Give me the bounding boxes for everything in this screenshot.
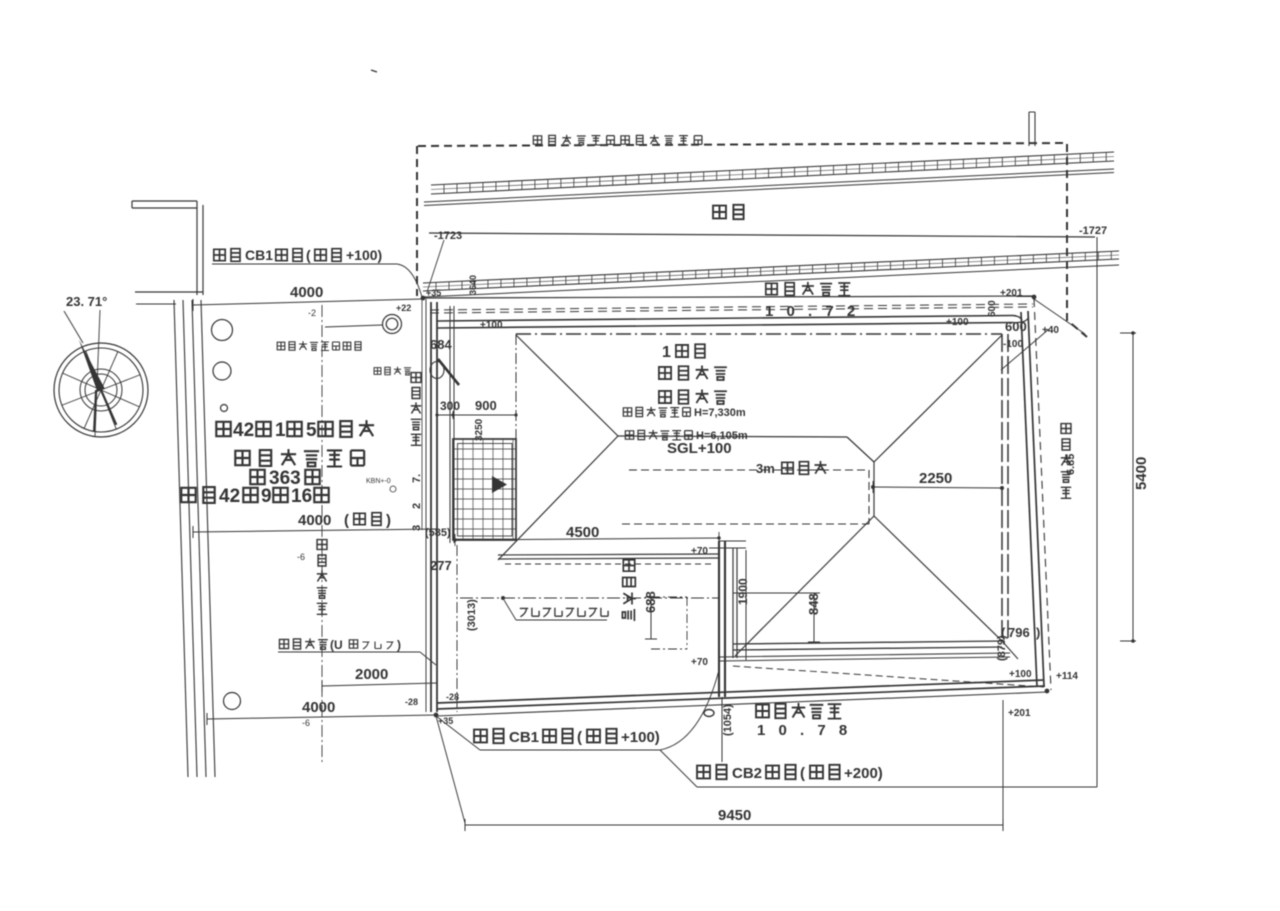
svg-text:+200): +200) xyxy=(844,765,883,782)
svg-text:3: 3 xyxy=(411,525,423,531)
svg-text:+22: +22 xyxy=(396,303,411,313)
svg-text:(: ( xyxy=(577,729,582,746)
svg-text:+201: +201 xyxy=(1008,708,1031,719)
svg-text:): ) xyxy=(1036,625,1040,640)
svg-text:4000: 4000 xyxy=(302,699,335,716)
svg-text:1: 1 xyxy=(275,420,286,441)
svg-text:(U: (U xyxy=(330,638,343,652)
svg-text:684: 684 xyxy=(430,337,452,352)
svg-text:+100: +100 xyxy=(1009,669,1032,680)
svg-text:+70: +70 xyxy=(691,657,708,668)
svg-text:1 0 . 7 2: 1 0 . 7 2 xyxy=(765,303,860,320)
svg-text:4000: 4000 xyxy=(290,284,323,301)
svg-text:-2: -2 xyxy=(308,308,316,318)
svg-text:3640: 3640 xyxy=(468,275,478,295)
svg-text:CB1: CB1 xyxy=(245,247,273,263)
svg-text:(585): (585) xyxy=(425,527,451,539)
svg-text:-1723: -1723 xyxy=(434,230,462,242)
svg-text:600: 600 xyxy=(1005,319,1027,334)
svg-text:2000: 2000 xyxy=(355,666,388,683)
svg-text:4500: 4500 xyxy=(566,524,599,541)
svg-text:796: 796 xyxy=(1008,625,1030,640)
svg-text:9450: 9450 xyxy=(718,807,751,824)
svg-text:900: 900 xyxy=(475,398,497,413)
svg-text:5: 5 xyxy=(306,420,317,441)
svg-text:-6: -6 xyxy=(302,718,310,728)
svg-text:2: 2 xyxy=(411,503,423,509)
svg-text:277: 277 xyxy=(430,558,452,573)
svg-text:+100: +100 xyxy=(946,317,969,328)
svg-text:23. 71°: 23. 71° xyxy=(66,294,107,309)
svg-text:-28: -28 xyxy=(405,697,418,707)
svg-text:+35: +35 xyxy=(438,716,453,726)
svg-text:42: 42 xyxy=(219,486,240,507)
svg-text:3m: 3m xyxy=(756,461,775,476)
svg-text:(: ( xyxy=(800,765,805,782)
svg-text:6.85: 6.85 xyxy=(1065,454,1077,475)
svg-text:SGL+100: SGL+100 xyxy=(667,440,732,457)
svg-text:+100: +100 xyxy=(480,320,503,331)
svg-text:-6: -6 xyxy=(297,552,305,562)
svg-text:(: ( xyxy=(306,247,311,263)
svg-text:1: 1 xyxy=(662,344,671,361)
svg-text:848: 848 xyxy=(806,593,821,615)
svg-text:5400: 5400 xyxy=(1133,457,1150,490)
svg-text:1 0 . 7 8: 1 0 . 7 8 xyxy=(757,722,852,739)
svg-text:CB2: CB2 xyxy=(732,765,762,782)
svg-text:3250: 3250 xyxy=(474,418,485,441)
svg-text:CB1: CB1 xyxy=(509,729,539,746)
svg-text:-100: -100 xyxy=(1003,339,1023,350)
svg-text:+35: +35 xyxy=(426,288,441,298)
svg-text:300: 300 xyxy=(440,399,460,413)
svg-text:+100): +100) xyxy=(621,729,660,746)
svg-text:+100): +100) xyxy=(346,247,382,263)
svg-text:600: 600 xyxy=(987,300,998,317)
svg-text:+201: +201 xyxy=(1000,288,1023,299)
svg-text:+70: +70 xyxy=(691,546,708,557)
svg-text:4000: 4000 xyxy=(298,512,331,529)
svg-text:): ) xyxy=(386,512,391,529)
svg-text:H=7,330m: H=7,330m xyxy=(694,407,746,419)
svg-text:688: 688 xyxy=(643,591,658,613)
svg-text:7.: 7. xyxy=(411,474,423,483)
svg-text:+114: +114 xyxy=(1056,671,1078,682)
svg-text:KBN+-0: KBN+-0 xyxy=(366,478,391,485)
svg-text:(3013): (3013) xyxy=(466,599,478,631)
svg-text:-28: -28 xyxy=(446,692,459,702)
svg-text:-1727: -1727 xyxy=(1079,225,1107,237)
svg-text:): ) xyxy=(397,638,401,652)
svg-text:42: 42 xyxy=(233,420,254,441)
svg-text:9: 9 xyxy=(261,486,272,507)
svg-text:+40: +40 xyxy=(1042,325,1059,336)
svg-text:(1054): (1054) xyxy=(722,704,734,736)
svg-text:(: ( xyxy=(344,512,349,529)
svg-text:(: ( xyxy=(1001,625,1006,640)
svg-text:1900: 1900 xyxy=(736,578,750,605)
svg-text:2250: 2250 xyxy=(919,470,952,487)
svg-text:16: 16 xyxy=(291,486,312,507)
